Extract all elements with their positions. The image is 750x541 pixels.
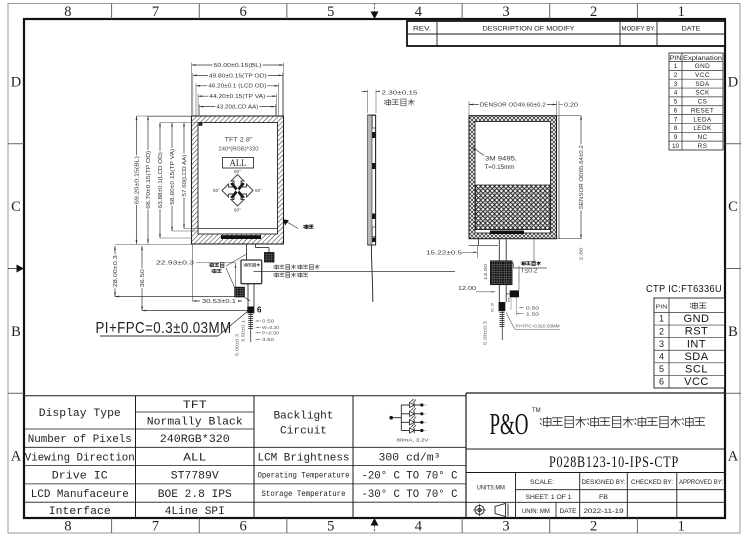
svg-text:SENSOR OD65.64±0.2: SENSOR OD65.64±0.2 [579,145,585,209]
svg-text:57.60(LCD AA): 57.60(LCD AA) [182,154,188,196]
svg-text:5: 5 [674,99,678,106]
svg-text:2: 2 [590,4,597,20]
svg-text:SCL: SCL [685,363,708,375]
svg-text:1: 1 [659,314,664,324]
svg-text:TM: TM [532,408,541,414]
svg-text:0.3: 0.3 [490,302,495,312]
svg-text:15.22±0.5: 15.22±0.5 [426,250,462,256]
svg-text:Number of Pixels: Number of Pixels [28,434,132,446]
svg-text:LEDK: LEDK [693,125,712,132]
svg-text:63.88±0.1(LCD OD): 63.88±0.1(LCD OD) [158,152,164,208]
svg-text:49.80±0.15(TP OD): 49.80±0.15(TP OD) [209,73,267,79]
svg-text:MODIFY BY:: MODIFY BY: [622,25,656,32]
svg-text:ST7789V: ST7789V [171,471,219,483]
svg-text:4: 4 [415,519,423,535]
svg-text:SCALE:: SCALE: [530,479,554,486]
svg-text:SCK: SCK [695,90,710,97]
svg-text:GND: GND [695,63,710,70]
svg-text:8: 8 [674,125,678,132]
svg-text:80°: 80° [234,208,241,213]
svg-text:DATE: DATE [682,25,702,32]
svg-text:D: D [11,74,21,90]
svg-text:8: 8 [64,519,71,535]
svg-text:Normally Black: Normally Black [147,417,243,429]
svg-text:Viewing Direction: Viewing Direction [25,452,135,464]
svg-text:5: 5 [327,4,334,20]
svg-text:Explanation: Explanation [683,55,723,62]
svg-text:2.80: 2.80 [579,247,584,261]
svg-text:PI+FPC=0.3±0.03MM: PI+FPC=0.3±0.03MM [96,320,232,337]
svg-text:Circuit: Circuit [280,426,327,438]
svg-text:80mA, 3.2V: 80mA, 3.2V [397,438,430,443]
svg-text:43.20(LCD AA): 43.20(LCD AA) [216,105,258,111]
svg-text:B: B [728,324,738,340]
svg-text:C: C [11,199,21,215]
svg-text:A: A [728,449,739,465]
svg-text:4: 4 [659,351,664,361]
svg-text:LCM Brightness: LCM Brightness [258,452,350,464]
svg-text:LCD Manufaceure: LCD Manufaceure [31,489,129,501]
svg-text:7: 7 [674,116,678,123]
svg-text:30.53±0.1: 30.53±0.1 [202,299,236,305]
svg-text:SHEET: 1 OF 1: SHEET: 1 OF 1 [526,494,572,501]
svg-text:9: 9 [674,134,678,141]
svg-text:Interface: Interface [49,506,111,518]
svg-text:3.50±0.1: 3.50±0.1 [240,319,245,342]
svg-text:ALL: ALL [183,452,206,464]
svg-text:10: 10 [672,143,680,150]
svg-text:68.70±0.15(TP OD): 68.70±0.15(TP OD) [146,150,152,208]
svg-text:2.30±0.15: 2.30±0.15 [382,91,418,97]
svg-text:Storage Temperature: Storage Temperature [262,490,346,499]
svg-text:PI+FPC=0.3±0.03MM: PI+FPC=0.3±0.03MM [516,324,560,329]
svg-text:-30° C TO 70° C: -30° C TO 70° C [362,489,458,501]
svg-text:6: 6 [659,377,664,387]
svg-text:FB: FB [599,494,608,501]
svg-text:28.00±0.3: 28.00±0.3 [113,255,119,287]
svg-text:240RGB*320: 240RGB*320 [160,434,230,446]
svg-text:1: 1 [674,63,678,70]
svg-text:CHECKED BY:: CHECKED BY: [631,479,673,486]
svg-text:GND: GND [684,313,710,325]
svg-text:VCC: VCC [695,72,710,79]
svg-text:Drive IC: Drive IC [52,471,108,483]
svg-text:RST: RST [685,326,709,338]
svg-text:6: 6 [674,107,678,114]
svg-text:58.60±0.15(TP VA): 58.60±0.15(TP VA) [170,148,176,204]
svg-text:TFT: TFT [183,400,207,412]
svg-text:46.20±0.1 (LCD OD): 46.20±0.1 (LCD OD) [208,84,266,90]
svg-text:BOE 2.8 IPS: BOE 2.8 IPS [158,489,232,501]
svg-text:8: 8 [64,4,71,20]
svg-text:69.20±0.15(BL): 69.20±0.15(BL) [134,156,140,204]
svg-text:UNIN: MM: UNIN: MM [522,508,550,515]
svg-text:T=0.15mm: T=0.15mm [485,165,515,171]
svg-text:LEDA: LEDA [693,116,712,123]
svg-text:DATE: DATE [560,508,578,515]
svg-text:0.50: 0.50 [526,306,540,311]
svg-text:3M 9495.: 3M 9495. [485,156,517,163]
svg-text:W=0.30: W=0.30 [262,325,280,330]
svg-text:VCC: VCC [684,376,709,388]
svg-text:UNITS:MM: UNITS:MM [477,485,505,492]
svg-text:CTP IC:FT6336U: CTP IC:FT6336U [646,284,722,295]
svg-text:APPROVED BY:: APPROVED BY: [679,479,723,486]
svg-text:P028B123-10-IPS-CTP: P028B123-10-IPS-CTP [549,454,679,471]
svg-text:3.50: 3.50 [262,337,275,342]
svg-text:3: 3 [502,519,509,535]
svg-text:DENSOR OD49.60±0.2: DENSOR OD49.60±0.2 [480,102,546,108]
svg-text:TFT 2.8": TFT 2.8" [225,138,253,144]
svg-text:1: 1 [678,4,685,20]
svg-text:3: 3 [659,339,664,349]
svg-text:INT: INT [687,338,706,350]
svg-text:1.50: 1.50 [526,312,540,317]
svg-text:P=0.50: P=0.50 [262,330,280,335]
svg-text:2: 2 [659,326,664,336]
svg-text:22.93±0.3: 22.93±0.3 [156,260,194,266]
svg-text:4: 4 [415,4,423,20]
svg-text:A: A [11,449,22,465]
svg-text:ALL: ALL [230,159,247,169]
svg-text:80°: 80° [234,169,241,174]
svg-text:NC: NC [697,134,707,141]
svg-text:PIN: PIN [670,55,682,62]
svg-text:6: 6 [257,306,262,315]
svg-text:300 cd/m³: 300 cd/m³ [379,452,441,464]
svg-text:B: B [11,324,21,340]
svg-text:DESIGNED BY:: DESIGNED BY: [582,479,626,486]
svg-text:RS: RS [698,143,708,150]
svg-text:P&O: P&O [490,406,529,441]
svg-text:0.20: 0.20 [564,103,578,109]
svg-text:80°: 80° [213,188,220,193]
svg-text:D: D [728,74,738,90]
svg-text:3: 3 [502,4,509,20]
svg-text:12.00: 12.00 [458,286,476,292]
svg-text:RESET: RESET [691,107,714,114]
svg-text:7: 7 [152,519,159,535]
svg-text:0.50: 0.50 [262,319,275,324]
svg-text:DESCRIPTION OF MODIFY: DESCRIPTION OF MODIFY [483,25,575,32]
svg-text:7: 7 [152,4,159,20]
svg-text:REV.: REV. [413,25,431,32]
svg-text:SDA: SDA [695,81,710,88]
svg-text:-20° C TO 70° C: -20° C TO 70° C [362,471,458,483]
svg-text:3: 3 [674,81,678,88]
svg-text:6: 6 [239,519,246,535]
svg-text:240*(RGB)*320: 240*(RGB)*320 [219,147,259,153]
svg-text:1: 1 [678,519,685,535]
svg-text:Display Type: Display Type [39,408,121,420]
svg-text:PIN: PIN [656,304,668,310]
svg-text:Operating Temperature: Operating Temperature [258,472,350,481]
svg-text:SDA: SDA [684,351,708,363]
svg-text:5.00±0.3: 5.00±0.3 [235,333,240,356]
svg-text:2: 2 [674,72,678,79]
svg-text:13.00: 13.00 [483,263,488,280]
svg-text:2022-11-19: 2022-11-19 [584,508,624,515]
svg-text:CS: CS [698,99,708,106]
svg-text:Backlight: Backlight [274,411,334,423]
svg-text:36.50: 36.50 [140,269,146,287]
svg-text:2: 2 [590,519,597,535]
svg-text:80°: 80° [255,188,262,193]
svg-text:4Line SPI: 4Line SPI [165,506,225,518]
svg-text:1: 1 [508,298,511,304]
svg-text:5.00±0.3: 5.00±0.3 [482,320,487,345]
svg-text:4: 4 [674,90,678,97]
svg-text:C: C [728,199,738,215]
svg-text:50.00±0.15(BL): 50.00±0.15(BL) [214,63,262,69]
svg-text:5: 5 [327,519,334,535]
svg-text:5: 5 [659,364,664,374]
svg-text:44.20±0.15(TP VA): 44.20±0.15(TP VA) [209,94,265,100]
svg-text:6: 6 [239,4,246,20]
